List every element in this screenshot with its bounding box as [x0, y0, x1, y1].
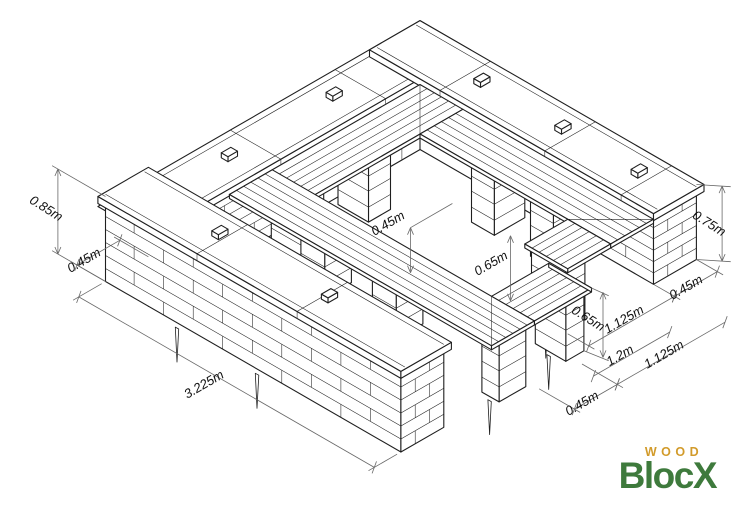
- dim-label-front-wall-thickness: 0.45m: [64, 244, 103, 275]
- woodblocx-logo: WOOD BlocX: [598, 446, 716, 494]
- dim-label-front-wall-height: 0.85m: [27, 192, 66, 224]
- dim-label-right-bench-length: 1.125m: [601, 302, 646, 337]
- dim-label-front-wall-length: 3.225m: [181, 367, 226, 402]
- dim-label-right-wall-thickness: 0.45m: [666, 271, 705, 302]
- dim-label-bottom-bench-length: 1.125m: [641, 337, 686, 372]
- dim-label-right-bench-height: 0.65m: [471, 247, 510, 278]
- page: { "diagram": { "dimensions": [ {"id": "f…: [0, 0, 738, 521]
- logo-blocx-text: BlocX: [598, 457, 716, 494]
- dim-label-opening-gap: 1.2m: [603, 341, 636, 369]
- isometric-planter-drawing: 0.85m 0.45m 3.225m 0.45m 1.125m 0.65m 1.…: [0, 0, 738, 521]
- dim-label-bottom-bench-width: 0.45m: [562, 387, 601, 418]
